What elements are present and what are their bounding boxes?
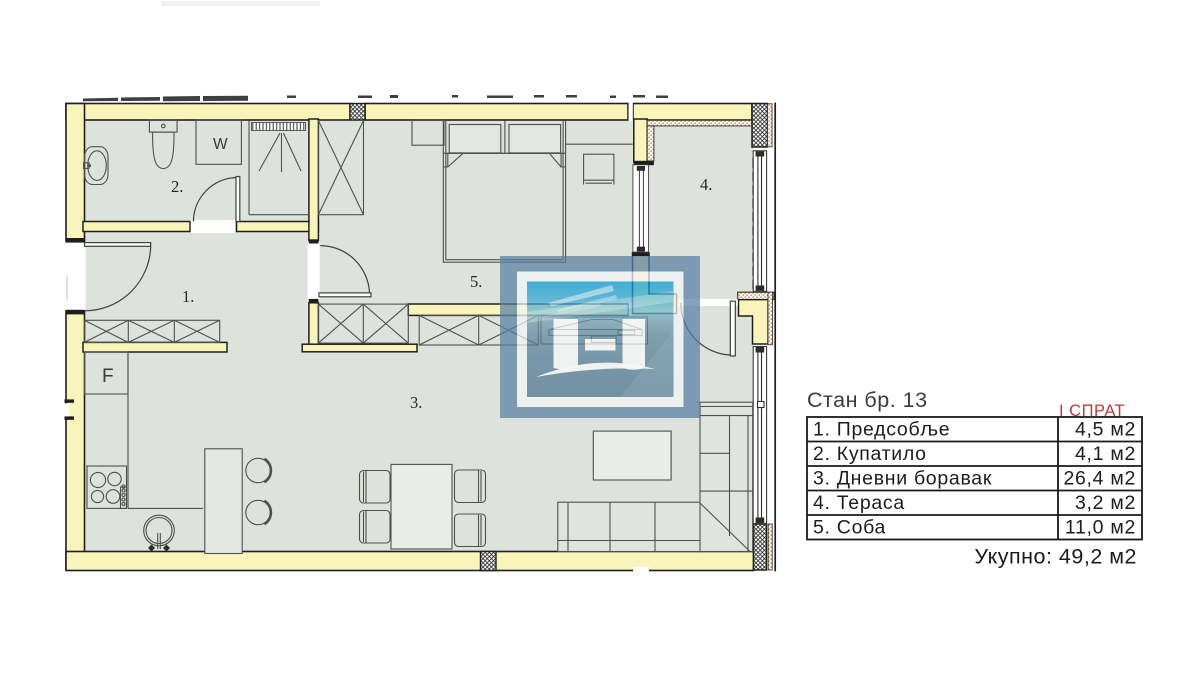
svg-text:F: F	[102, 366, 114, 387]
svg-text:Укупно: 49,2 м2: Укупно: 49,2 м2	[974, 545, 1137, 569]
svg-text:4. Тераса: 4. Тераса	[813, 492, 905, 514]
svg-text:3. Дневни боравак: 3. Дневни боравак	[813, 468, 992, 490]
svg-text:2. Купатило: 2. Купатило	[813, 443, 927, 465]
svg-text:26,4 м2: 26,4 м2	[1063, 468, 1136, 490]
svg-text:3,2 м2: 3,2 м2	[1075, 492, 1136, 514]
svg-text:W: W	[213, 136, 228, 153]
svg-text:3.: 3.	[410, 393, 422, 412]
svg-text:11,0 м2: 11,0 м2	[1065, 517, 1136, 539]
svg-text:1. Предсобље: 1. Предсобље	[813, 419, 950, 441]
svg-text:2.: 2.	[171, 177, 183, 196]
svg-text:4,1 м2: 4,1 м2	[1075, 443, 1136, 465]
svg-text:5. Соба: 5. Соба	[813, 517, 886, 539]
svg-text:Стан бр. 13: Стан бр. 13	[807, 388, 928, 412]
svg-text:4.: 4.	[700, 175, 712, 194]
svg-text:1.: 1.	[182, 287, 194, 306]
svg-text:5.: 5.	[470, 272, 482, 291]
svg-text:4,5 м2: 4,5 м2	[1075, 419, 1136, 441]
